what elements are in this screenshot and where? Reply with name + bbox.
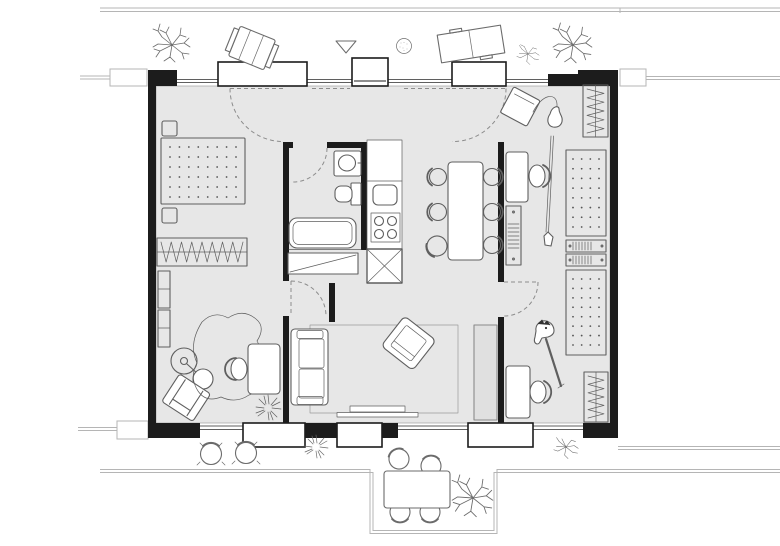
- entrance-door-bay: [352, 58, 388, 86]
- party-wall-stub-top-right: [620, 69, 646, 86]
- window-bottom-3: [533, 426, 583, 430]
- floor-plan-drawing: [0, 0, 780, 546]
- dining-table: [448, 162, 483, 260]
- window-top-2: [307, 80, 352, 83]
- wall-pier-bottom-right: [583, 423, 618, 438]
- terrace-tree: [452, 475, 493, 517]
- balcony-door-bay-kids: [452, 62, 506, 86]
- window-bottom-1: [200, 426, 243, 430]
- wall-corner-top-right: [578, 70, 618, 86]
- window-bay-bottom-3: [468, 423, 533, 447]
- window-bay-bottom-2: [337, 423, 382, 447]
- toilet: [335, 183, 361, 205]
- party-wall-line-bottom-right: [618, 447, 780, 450]
- washbasin: [334, 151, 361, 176]
- window-bottom-2: [398, 426, 468, 430]
- party-wall-stub-bottom-left: [117, 421, 148, 439]
- tall-cabinet: [474, 325, 497, 420]
- wall-pier-top-right: [548, 74, 578, 86]
- small-tree: [554, 437, 578, 458]
- wall-left: [148, 70, 156, 438]
- terrace-table: [384, 471, 450, 508]
- party-wall-line-bottom-left: [78, 428, 117, 431]
- wall-bath-right: [361, 142, 367, 250]
- refrigerator: [367, 249, 402, 283]
- double-sun-lounger: [437, 22, 506, 66]
- entrance-marker-triangle: [336, 41, 356, 53]
- spiky-plant: [304, 435, 328, 458]
- wall-pier-bottom-left: [148, 423, 200, 438]
- large-tree: [553, 23, 592, 63]
- washing-machine: [288, 253, 358, 274]
- desk: [248, 344, 280, 394]
- deciduous-tree: [153, 24, 190, 62]
- wall-pier-top-left: [148, 70, 177, 86]
- wall-bath-top-a: [283, 142, 293, 148]
- terrace: [384, 445, 493, 522]
- party-wall-line-top-left: [80, 76, 110, 79]
- party-wall-line-top-right: [646, 77, 780, 80]
- wall-stub-living: [329, 283, 335, 322]
- kitchen: [367, 140, 402, 283]
- wall-right: [610, 70, 618, 438]
- sofa: [291, 329, 328, 405]
- bathtub: [289, 218, 356, 248]
- wall-bath-left-lower: [283, 316, 289, 423]
- desk: [506, 366, 530, 418]
- bistro-chair: [197, 443, 225, 465]
- window-top-1: [177, 80, 218, 83]
- terrace-chair: [385, 445, 412, 472]
- street-line-top: [100, 8, 780, 13]
- party-wall-stub-top-left: [110, 69, 147, 86]
- wall-kids-lower: [498, 317, 504, 423]
- round-shrub: [397, 39, 412, 54]
- floor-plan-canvas: [0, 0, 780, 546]
- window-top-3: [388, 80, 452, 83]
- window-top-4: [506, 80, 548, 83]
- small-tree: [517, 45, 539, 65]
- desk: [506, 152, 528, 202]
- wall-pier-bottom-mid1: [305, 423, 337, 438]
- wall-pier-bottom-mid2: [382, 423, 398, 438]
